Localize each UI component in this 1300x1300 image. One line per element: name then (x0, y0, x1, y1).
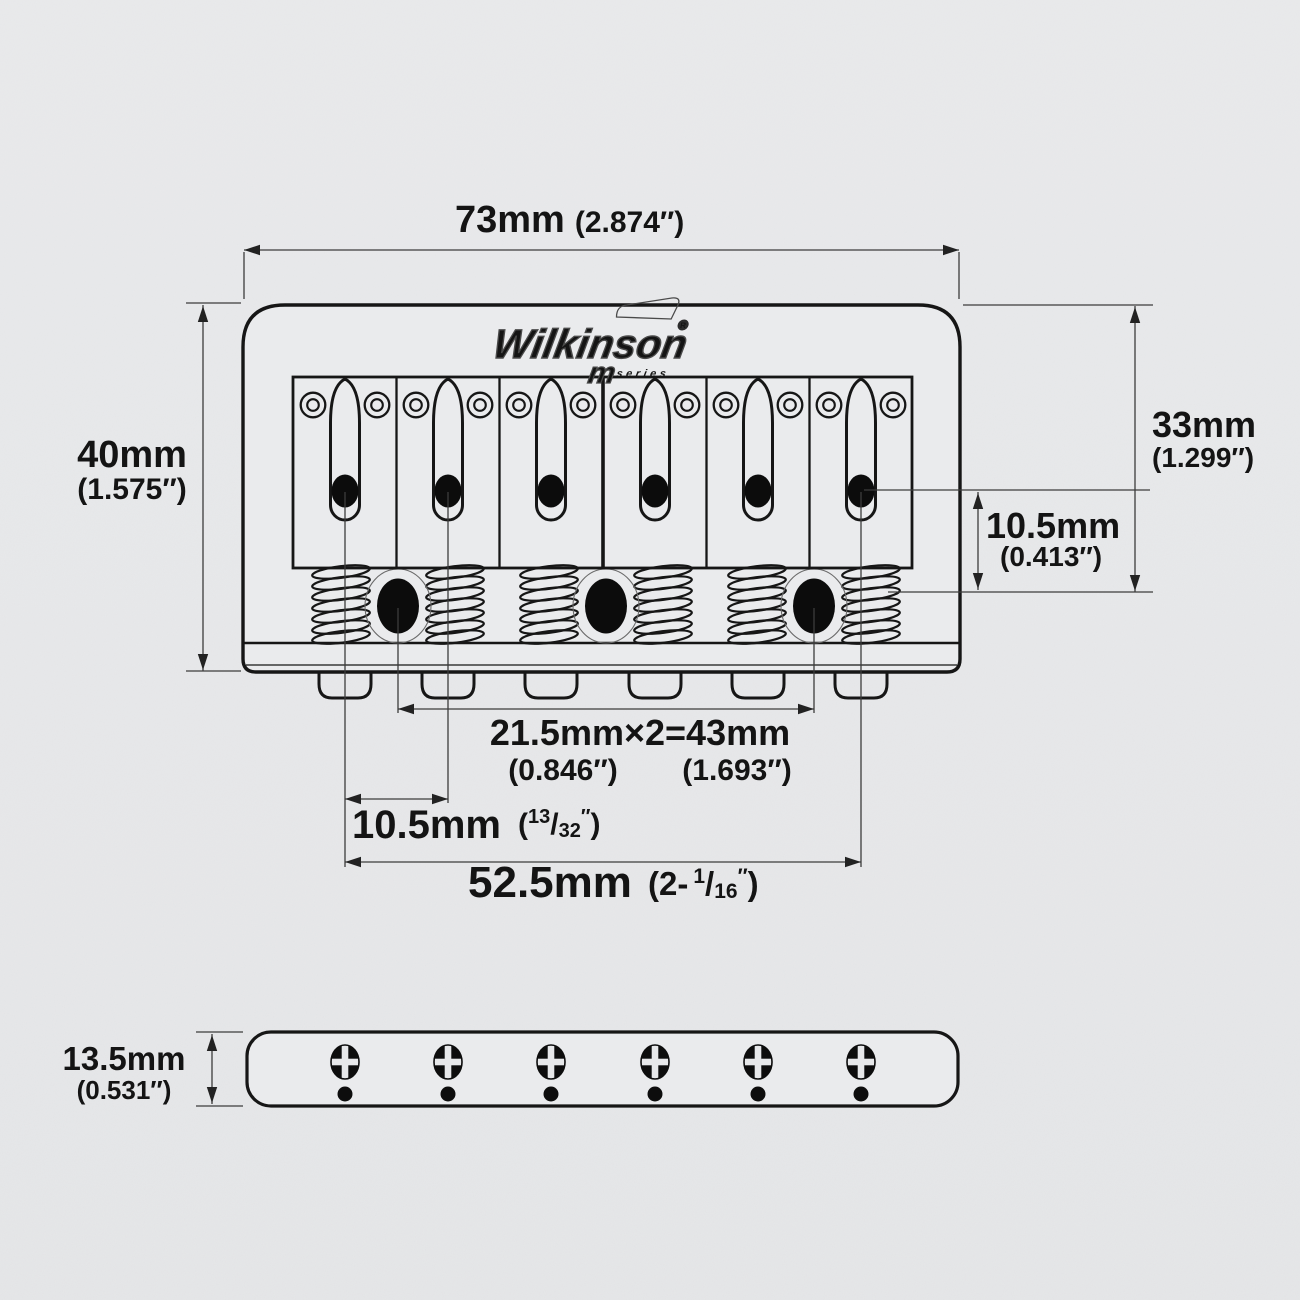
logo-series-text: series (615, 368, 670, 380)
fraction-numerator: 13 (528, 806, 550, 828)
dim-value-mm: 73mm (455, 199, 565, 241)
diagram-page: Wilkinson R m series (0, 0, 1300, 1300)
bridge-top-view: Wilkinson R m series (243, 298, 960, 698)
fraction-close: ) (748, 865, 759, 902)
dim-string-span-label-mm: 52.5mm (468, 858, 632, 907)
fraction-numerator: 1 (693, 865, 705, 888)
fraction-denominator: 16 (714, 880, 737, 903)
string-hole-dot (854, 1087, 869, 1102)
fraction-close: ) (590, 808, 600, 841)
string-hole-dot (544, 1087, 559, 1102)
dim-plate-thickness-label-inch: (0.531″) (77, 1075, 172, 1105)
dim-body-depth-label-mm: 33mm (1152, 404, 1256, 445)
guitar-bridge-technical-diagram: Wilkinson R m series (0, 0, 1300, 1300)
string-hole-dot (338, 1087, 353, 1102)
dim-screw-spacing-label-inch-full: (1.693″) (682, 754, 791, 787)
fraction-slash: / (705, 865, 714, 902)
string-hole-dot (441, 1087, 456, 1102)
dim-string-pitch-label-mm: 10.5mm (352, 803, 501, 847)
string-hole-dot (648, 1087, 663, 1102)
dim-screw-spacing-label-mm: 21.5mm×2=43mm (490, 712, 790, 753)
fraction-open: ( (518, 808, 528, 841)
fraction-open: (2- (648, 865, 688, 902)
string-hole-dot (751, 1087, 766, 1102)
dim-hole-to-screw-label-mm: 10.5mm (986, 505, 1120, 546)
dim-body-depth-label-inch: (1.299″) (1152, 442, 1254, 473)
dim-overall-depth-label-inch: (1.575″) (77, 473, 186, 506)
fraction-denominator: 32 (559, 820, 581, 842)
dim-screw-spacing-label-inch-half: (0.846″) (508, 754, 617, 787)
dim-value-inch: (2.874″) (575, 206, 684, 239)
dim-plate-thickness-label-mm: 13.5mm (63, 1040, 186, 1077)
dim-overall-depth-label-mm: 40mm (77, 434, 187, 476)
dim-hole-to-screw-label-inch: (0.413″) (1000, 541, 1102, 572)
inch-prime: ″ (738, 865, 748, 888)
inch-prime: ″ (581, 806, 591, 828)
